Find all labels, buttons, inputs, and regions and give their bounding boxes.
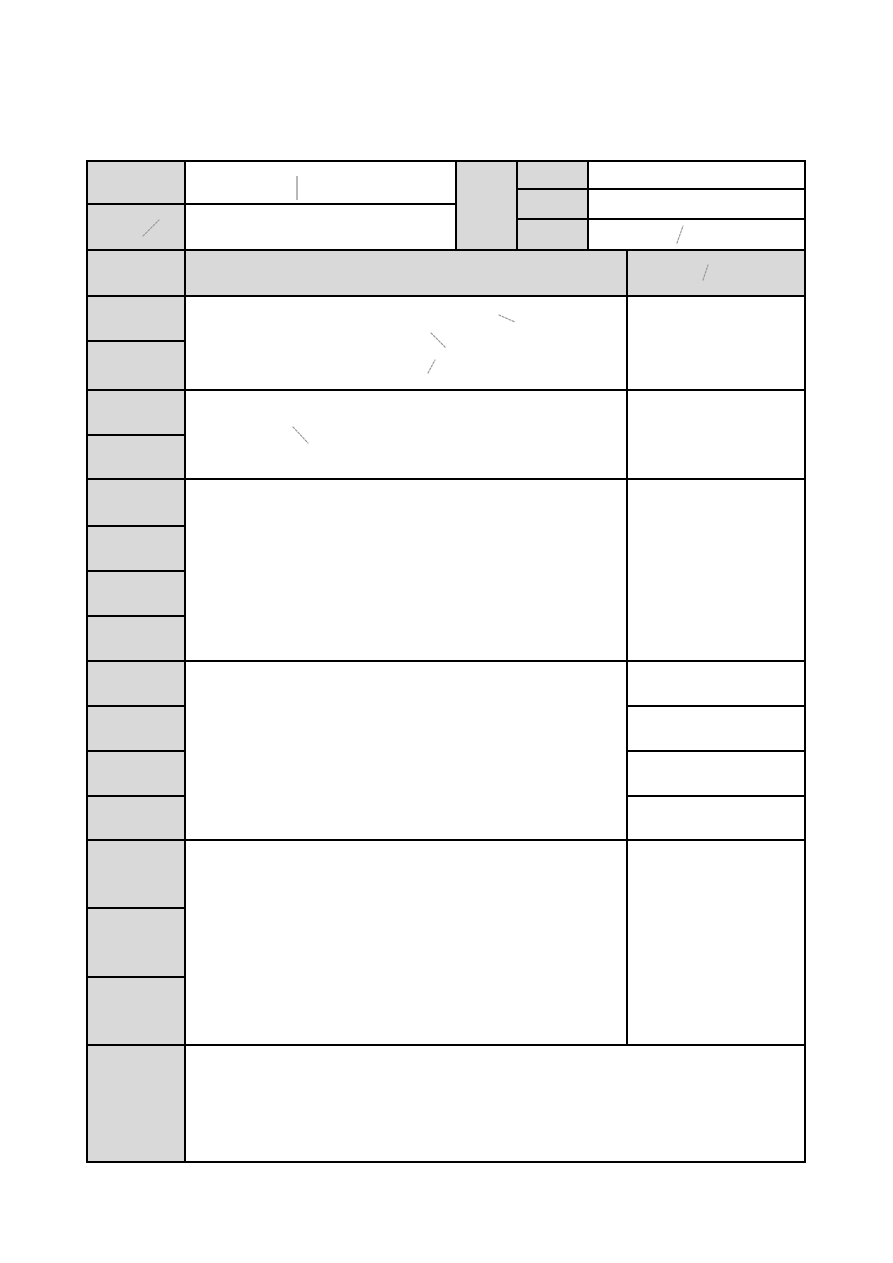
field-cell[interactable] — [185, 161, 456, 204]
label-cell — [517, 219, 588, 250]
label-cell — [87, 479, 185, 526]
document-page — [0, 0, 893, 1263]
label-cell — [87, 1045, 185, 1162]
field-cell[interactable] — [627, 390, 805, 479]
field-cell[interactable] — [185, 661, 627, 840]
label-cell — [87, 661, 185, 706]
label-cell — [87, 571, 185, 616]
label-cell — [87, 161, 185, 204]
field-cell[interactable] — [627, 661, 805, 706]
label-cell — [87, 977, 185, 1045]
field-cell[interactable] — [588, 219, 805, 250]
label-cell — [87, 341, 185, 390]
field-cell[interactable] — [627, 840, 805, 1045]
label-cell — [87, 204, 185, 250]
label-cell — [87, 796, 185, 840]
label-cell — [87, 435, 185, 479]
field-cell[interactable] — [185, 204, 456, 250]
field-cell[interactable] — [627, 796, 805, 840]
field-cell[interactable] — [627, 479, 805, 661]
label-cell — [87, 751, 185, 796]
label-cell — [87, 526, 185, 571]
field-cell[interactable] — [185, 840, 627, 1045]
label-cell — [87, 616, 185, 661]
label-cell — [517, 161, 588, 189]
label-cell — [517, 189, 588, 219]
label-cell — [456, 161, 517, 250]
field-cell[interactable] — [588, 161, 805, 189]
label-cell — [87, 296, 185, 341]
header-cell — [185, 250, 627, 296]
label-cell — [87, 706, 185, 751]
field-cell[interactable] — [185, 1045, 805, 1162]
header-cell — [627, 250, 805, 296]
field-cell[interactable] — [588, 189, 805, 219]
field-cell[interactable] — [185, 479, 627, 661]
label-cell — [87, 840, 185, 908]
field-cell[interactable] — [185, 390, 627, 479]
field-cell[interactable] — [185, 296, 627, 390]
label-cell — [87, 390, 185, 435]
field-cell[interactable] — [627, 296, 805, 390]
label-cell — [87, 908, 185, 977]
field-cell[interactable] — [627, 751, 805, 796]
field-cell[interactable] — [627, 706, 805, 751]
header-cell — [87, 250, 185, 296]
